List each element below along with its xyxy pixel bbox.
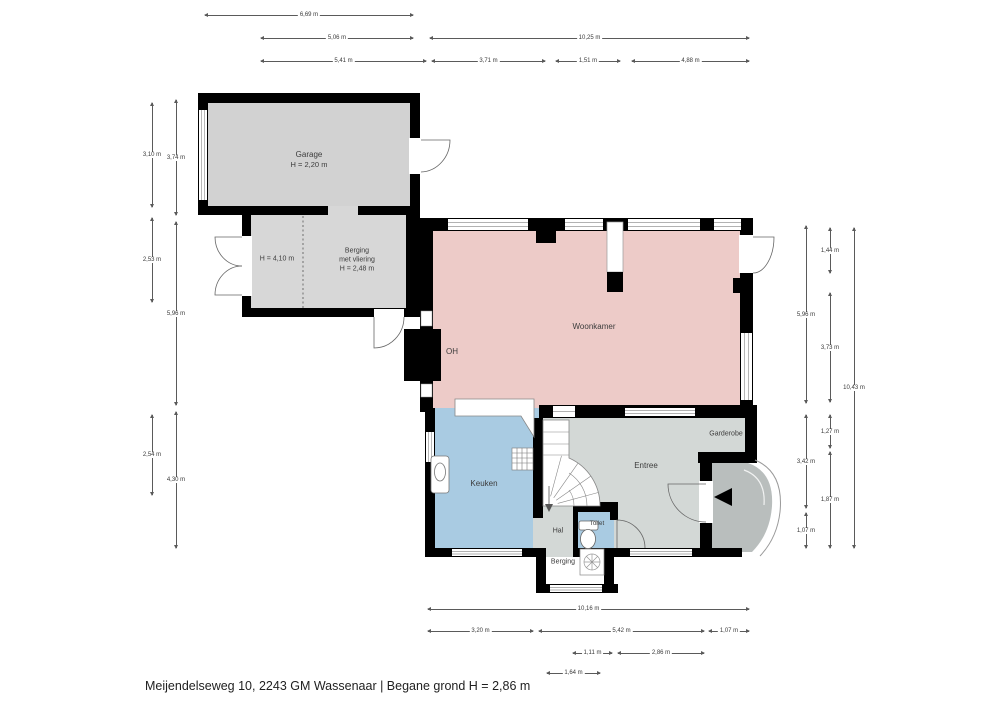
berging-bottom-door-opening (374, 309, 404, 317)
berging-doors-opening (241, 236, 252, 296)
passage-hal-berging2 (546, 548, 573, 557)
dimension-line: 5,96 m (806, 226, 807, 403)
berging2-window (550, 585, 602, 592)
garage-door-swing (421, 140, 450, 172)
chimney-slot-top (421, 311, 432, 326)
chimney-slot-bottom (421, 384, 432, 397)
room-label-entree: Entree (634, 461, 658, 471)
dimension-label: 3,42 m (795, 459, 817, 465)
stove-burner-icon (512, 448, 533, 470)
dimension-line: 2,54 m (152, 415, 153, 495)
dimension-label: 1,51 m (577, 58, 599, 64)
room-name: Entree (634, 461, 658, 471)
dimension-line: 3,10 m (152, 103, 153, 207)
dimension-line: 3,20 m (428, 631, 533, 632)
room-name: Woonkamer (573, 322, 616, 332)
woonkamer-floor (424, 222, 749, 412)
garage-window (199, 110, 207, 200)
dimension-line: 3,73 m (830, 293, 831, 402)
room-label-berging2: Berging (551, 558, 575, 567)
dimension-line: 1,64 m (547, 673, 600, 674)
woonkamer-top-windows (448, 219, 741, 230)
dimension-line: 2,86 m (618, 653, 704, 654)
dimension-label: 1,27 m (819, 429, 841, 435)
plan-caption: Meijendelseweg 10, 2243 GM Wassenaar | B… (145, 679, 530, 693)
passage-garage-berging (328, 206, 358, 215)
dimension-label: 3,71 m (477, 58, 499, 64)
dimension-label: 5,41 m (332, 58, 354, 64)
duct-cap (607, 272, 623, 292)
room-name: Hal (553, 527, 564, 536)
room-label-garage: Garage H = 2,20 m (291, 150, 328, 170)
dimension-label: 10,25 m (577, 35, 603, 41)
room-note: met vliering (339, 256, 375, 265)
dimension-line: 1,44 m (830, 228, 831, 273)
dimension-label: 4,88 m (679, 58, 701, 64)
dimension-label: 3,74 m (165, 155, 187, 161)
dimension-line: 2,53 m (152, 218, 153, 302)
dimension-label: 5,96 m (165, 311, 187, 317)
dimension-label: 1,11 m (582, 650, 604, 656)
chimney-block (404, 329, 441, 381)
room-label-garderobe: Garderobe (709, 430, 742, 439)
dimension-label: 10,43 m (841, 385, 867, 391)
dimension-label: 3,10 m (141, 152, 163, 158)
woonkamer-entree-window (625, 408, 695, 416)
dimension-label: 5,96 m (795, 312, 817, 318)
dimension-line: 1,11 m (573, 653, 612, 654)
berging-door-swing-bottom (215, 266, 242, 295)
dimension-line: 10,43 m (854, 228, 855, 548)
room-label-keuken: Keuken (470, 479, 497, 489)
room-label-berging-height: H = 4,10 m (260, 255, 294, 264)
dimension-label: 2,86 m (650, 650, 672, 656)
floor-plan-drawing (0, 0, 1000, 707)
room-name: Garage (291, 150, 328, 160)
fan-icon (580, 549, 604, 575)
room-label-toilet: Toilet (590, 520, 604, 528)
dimension-label: 1,87 m (819, 497, 841, 503)
duct-channel (607, 222, 623, 272)
dimension-line: 3,74 m (176, 100, 177, 215)
garage-door-opening (409, 138, 421, 174)
room-floors (202, 97, 772, 588)
room-label-hal: Hal (553, 527, 564, 536)
room-label-woonkamer: Woonkamer (573, 322, 616, 332)
woonkamer-right-window (741, 333, 752, 400)
dimension-label: 1,44 m (819, 248, 841, 254)
floor-plan-page: Garage H = 2,20 m H = 4,10 m Berging met… (0, 0, 1000, 707)
dimension-label: 1,07 m (718, 628, 740, 634)
dimension-label: 5,06 m (326, 35, 348, 41)
dimension-line: 1,87 m (830, 452, 831, 548)
sink-icon (431, 456, 449, 493)
room-height: H = 4,10 m (260, 255, 294, 264)
room-name: Berging (551, 558, 575, 567)
room-name: OH (446, 347, 458, 357)
room-height: H = 2,20 m (291, 160, 328, 170)
dimension-line: 1,07 m (806, 513, 807, 548)
porch-floor (712, 463, 772, 552)
room-name: Berging (339, 247, 375, 256)
dimension-label: 6,69 m (298, 12, 320, 18)
dimension-label: 1,64 m (562, 670, 584, 676)
room-label-berging: Berging met vliering H = 2,48 m (339, 247, 375, 274)
dimension-line: 6,69 m (205, 15, 413, 16)
dimension-line: 1,27 m (830, 415, 831, 448)
dimension-label: 2,53 m (141, 257, 163, 263)
dimension-line: 10,16 m (428, 609, 749, 610)
dimension-line: 5,42 m (539, 631, 704, 632)
dimension-line: 1,07 m (709, 631, 749, 632)
dimension-label: 4,30 m (165, 477, 187, 483)
dimension-label: 3,20 m (469, 628, 491, 634)
dimension-line: 4,30 m (176, 412, 177, 548)
dimension-line: 3,42 m (806, 415, 807, 508)
dimension-label: 5,42 m (610, 628, 632, 634)
woonkamer-terrace-door-swing (753, 237, 774, 273)
dimension-line: 10,25 m (430, 38, 749, 39)
entree-bottom-window (630, 549, 692, 556)
berging-door-swing-top (215, 237, 242, 266)
room-name: Garderobe (709, 430, 742, 439)
woonkamer-stairs-opening (553, 406, 575, 417)
room-name: Toilet (590, 520, 604, 528)
dimension-line: 5,06 m (261, 38, 413, 39)
room-label-oh: OH (446, 347, 458, 357)
dimension-label: 1,07 m (795, 528, 817, 534)
dimension-label: 10,16 m (576, 606, 602, 612)
keuken-bottom-window (452, 549, 522, 556)
woonkamer-right-door-opening (739, 235, 754, 273)
dimension-label: 3,73 m (819, 345, 841, 351)
dimension-line: 1,51 m (556, 61, 620, 62)
room-name: Keuken (470, 479, 497, 489)
passage-keuken-hal (533, 518, 543, 548)
berging-back-door-swing (374, 317, 404, 348)
front-door-opening (699, 481, 713, 523)
room-height: H = 2,48 m (339, 265, 375, 274)
dimension-line: 4,88 m (632, 61, 749, 62)
dimension-line: 5,96 m (176, 222, 177, 405)
dimension-line: 5,41 m (261, 61, 426, 62)
dimension-label: 2,54 m (141, 452, 163, 458)
dimension-line: 3,71 m (432, 61, 545, 62)
